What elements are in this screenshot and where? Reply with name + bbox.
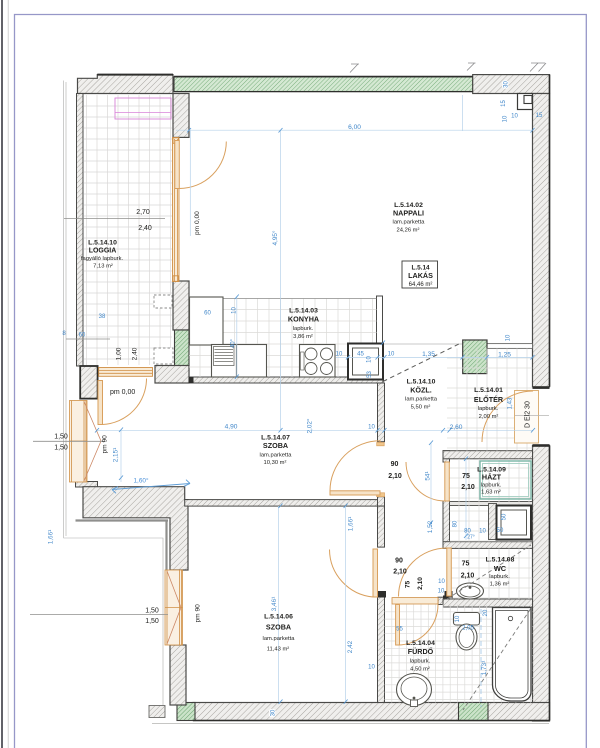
- svg-text:pm 0,00: pm 0,00: [194, 211, 201, 235]
- svg-text:80: 80: [453, 520, 459, 527]
- svg-text:50: 50: [497, 528, 504, 534]
- svg-text:pm 90: pm 90: [195, 604, 202, 623]
- svg-text:30: 30: [271, 709, 277, 716]
- svg-text:KÖZL.: KÖZL.: [410, 386, 432, 395]
- svg-text:60: 60: [79, 333, 86, 339]
- svg-text:10: 10: [388, 352, 395, 358]
- svg-text:2,10: 2,10: [461, 573, 475, 580]
- svg-text:10: 10: [506, 334, 512, 341]
- svg-text:2,40: 2,40: [138, 225, 152, 232]
- svg-text:SZOBA: SZOBA: [263, 441, 288, 450]
- svg-text:WC: WC: [494, 564, 507, 573]
- svg-text:1,52: 1,52: [427, 520, 434, 533]
- svg-text:2,60: 2,60: [450, 424, 463, 431]
- svg-text:10: 10: [336, 352, 343, 358]
- svg-text:D El2 30: D El2 30: [525, 401, 532, 428]
- svg-text:KONYHA: KONYHA: [288, 315, 319, 324]
- svg-text:60: 60: [204, 311, 211, 317]
- svg-text:7,13 m²: 7,13 m²: [93, 264, 113, 270]
- svg-text:2,00 m²: 2,00 m²: [479, 414, 499, 420]
- svg-text:5,50 m²: 5,50 m²: [411, 405, 431, 411]
- svg-text:10: 10: [368, 425, 375, 431]
- svg-text:45: 45: [357, 352, 364, 358]
- svg-text:NAPPALI: NAPPALI: [393, 209, 424, 218]
- svg-text:lam.parketta: lam.parketta: [405, 397, 438, 403]
- svg-text:ELŐTÉR: ELŐTÉR: [474, 395, 504, 404]
- svg-text:3,86 m²: 3,86 m²: [293, 334, 313, 340]
- svg-text:10,30 m²: 10,30 m²: [264, 460, 287, 466]
- svg-text:lam.parketta: lam.parketta: [263, 636, 296, 642]
- svg-text:lapburk.: lapburk.: [293, 326, 314, 332]
- svg-text:fagyálló lapburk.: fagyálló lapburk.: [81, 256, 124, 262]
- svg-text:pm 0,00: pm 0,00: [110, 389, 135, 396]
- svg-text:L.5.14.10: L.5.14.10: [88, 240, 117, 247]
- svg-text:24,26 m²: 24,26 m²: [397, 228, 420, 234]
- svg-text:55: 55: [396, 627, 403, 633]
- svg-text:1,60°: 1,60°: [134, 477, 149, 485]
- svg-text:30: 30: [504, 81, 510, 88]
- svg-text:11,43 m²: 11,43 m²: [267, 647, 290, 653]
- svg-text:2,42: 2,42: [347, 640, 354, 653]
- svg-text:10: 10: [367, 356, 373, 363]
- svg-text:40°: 40°: [231, 338, 237, 348]
- svg-text:38: 38: [99, 314, 106, 320]
- svg-text:lapburk.: lapburk.: [489, 574, 510, 580]
- svg-text:2,02°: 2,02°: [306, 418, 314, 433]
- svg-text:1,63 m²: 1,63 m²: [481, 489, 501, 495]
- svg-text:1,35: 1,35: [422, 351, 435, 358]
- svg-text:pm 90: pm 90: [102, 435, 109, 454]
- svg-text:75: 75: [462, 561, 470, 568]
- svg-text:15: 15: [536, 113, 543, 119]
- svg-text:20: 20: [483, 609, 489, 616]
- svg-text:2,10: 2,10: [388, 473, 402, 480]
- svg-text:2,70: 2,70: [136, 209, 150, 216]
- svg-text:1,73¹: 1,73¹: [481, 661, 488, 676]
- svg-text:1,00: 1,00: [116, 347, 123, 360]
- svg-text:lam.parketta: lam.parketta: [393, 220, 426, 226]
- svg-text:L.5.14.04: L.5.14.04: [406, 640, 435, 647]
- svg-text:10: 10: [368, 665, 375, 671]
- svg-text:1,50: 1,50: [54, 445, 68, 452]
- svg-text:75: 75: [462, 473, 470, 480]
- svg-text:2,10: 2,10: [417, 577, 424, 590]
- svg-text:10: 10: [503, 115, 509, 122]
- svg-text:2,10: 2,10: [393, 569, 407, 576]
- svg-text:2,10: 2,10: [461, 484, 475, 491]
- svg-text:SZOBA: SZOBA: [266, 623, 291, 632]
- svg-text:1,50: 1,50: [54, 434, 68, 441]
- svg-text:FÜRDŐ: FÜRDŐ: [408, 647, 434, 656]
- svg-text:lapburk.: lapburk.: [481, 483, 502, 489]
- svg-text:LAKÁS: LAKÁS: [408, 271, 433, 280]
- svg-text:75: 75: [405, 581, 412, 589]
- svg-text:15: 15: [501, 100, 507, 107]
- svg-text:1,36 m²: 1,36 m²: [490, 582, 510, 588]
- svg-text:10: 10: [511, 114, 518, 120]
- svg-text:LOGGIA: LOGGIA: [89, 248, 117, 255]
- svg-text:10: 10: [455, 615, 461, 622]
- svg-text:4,95°: 4,95°: [271, 230, 279, 245]
- svg-text:2,15¹: 2,15¹: [113, 448, 120, 463]
- svg-text:1,25: 1,25: [498, 352, 511, 359]
- svg-text:6,00: 6,00: [348, 124, 361, 131]
- svg-text:lam.parketta: lam.parketta: [260, 452, 293, 458]
- svg-text:64,46 m²: 64,46 m²: [409, 282, 433, 288]
- svg-text:54¹: 54¹: [425, 471, 432, 480]
- svg-text:L.5.14.03: L.5.14.03: [289, 308, 318, 315]
- svg-text:90: 90: [395, 558, 403, 565]
- svg-text:1,66¹: 1,66¹: [348, 517, 355, 532]
- svg-text:3,46¹: 3,46¹: [271, 597, 278, 612]
- svg-text:1,66¹: 1,66¹: [48, 530, 55, 545]
- svg-text:4,90: 4,90: [225, 424, 238, 431]
- svg-text:1,43: 1,43: [508, 397, 514, 409]
- svg-text:4,50 m²: 4,50 m²: [410, 667, 430, 673]
- svg-text:1,50: 1,50: [145, 608, 159, 615]
- svg-text:50: 50: [502, 513, 508, 520]
- svg-text:L.5.14.01: L.5.14.01: [474, 387, 503, 394]
- svg-text:L.5.14.08: L.5.14.08: [486, 557, 515, 564]
- svg-text:L.5.14.06: L.5.14.06: [264, 614, 293, 621]
- svg-text:90: 90: [391, 461, 399, 468]
- svg-text:lapburk.: lapburk.: [478, 406, 499, 412]
- svg-text:L.5.14.10: L.5.14.10: [407, 379, 436, 386]
- svg-text:2,05: 2,05: [462, 626, 474, 632]
- svg-text:10: 10: [438, 589, 445, 595]
- svg-text:lapburk.: lapburk.: [410, 658, 431, 664]
- svg-text:10: 10: [232, 307, 238, 314]
- svg-text:53: 53: [367, 371, 373, 378]
- svg-text:2,40: 2,40: [132, 347, 139, 360]
- svg-text:1,50: 1,50: [145, 618, 159, 625]
- svg-text:10: 10: [479, 529, 486, 535]
- svg-text:27°: 27°: [467, 535, 475, 541]
- svg-text:10: 10: [438, 579, 445, 585]
- svg-text:HÁZT: HÁZT: [482, 473, 502, 482]
